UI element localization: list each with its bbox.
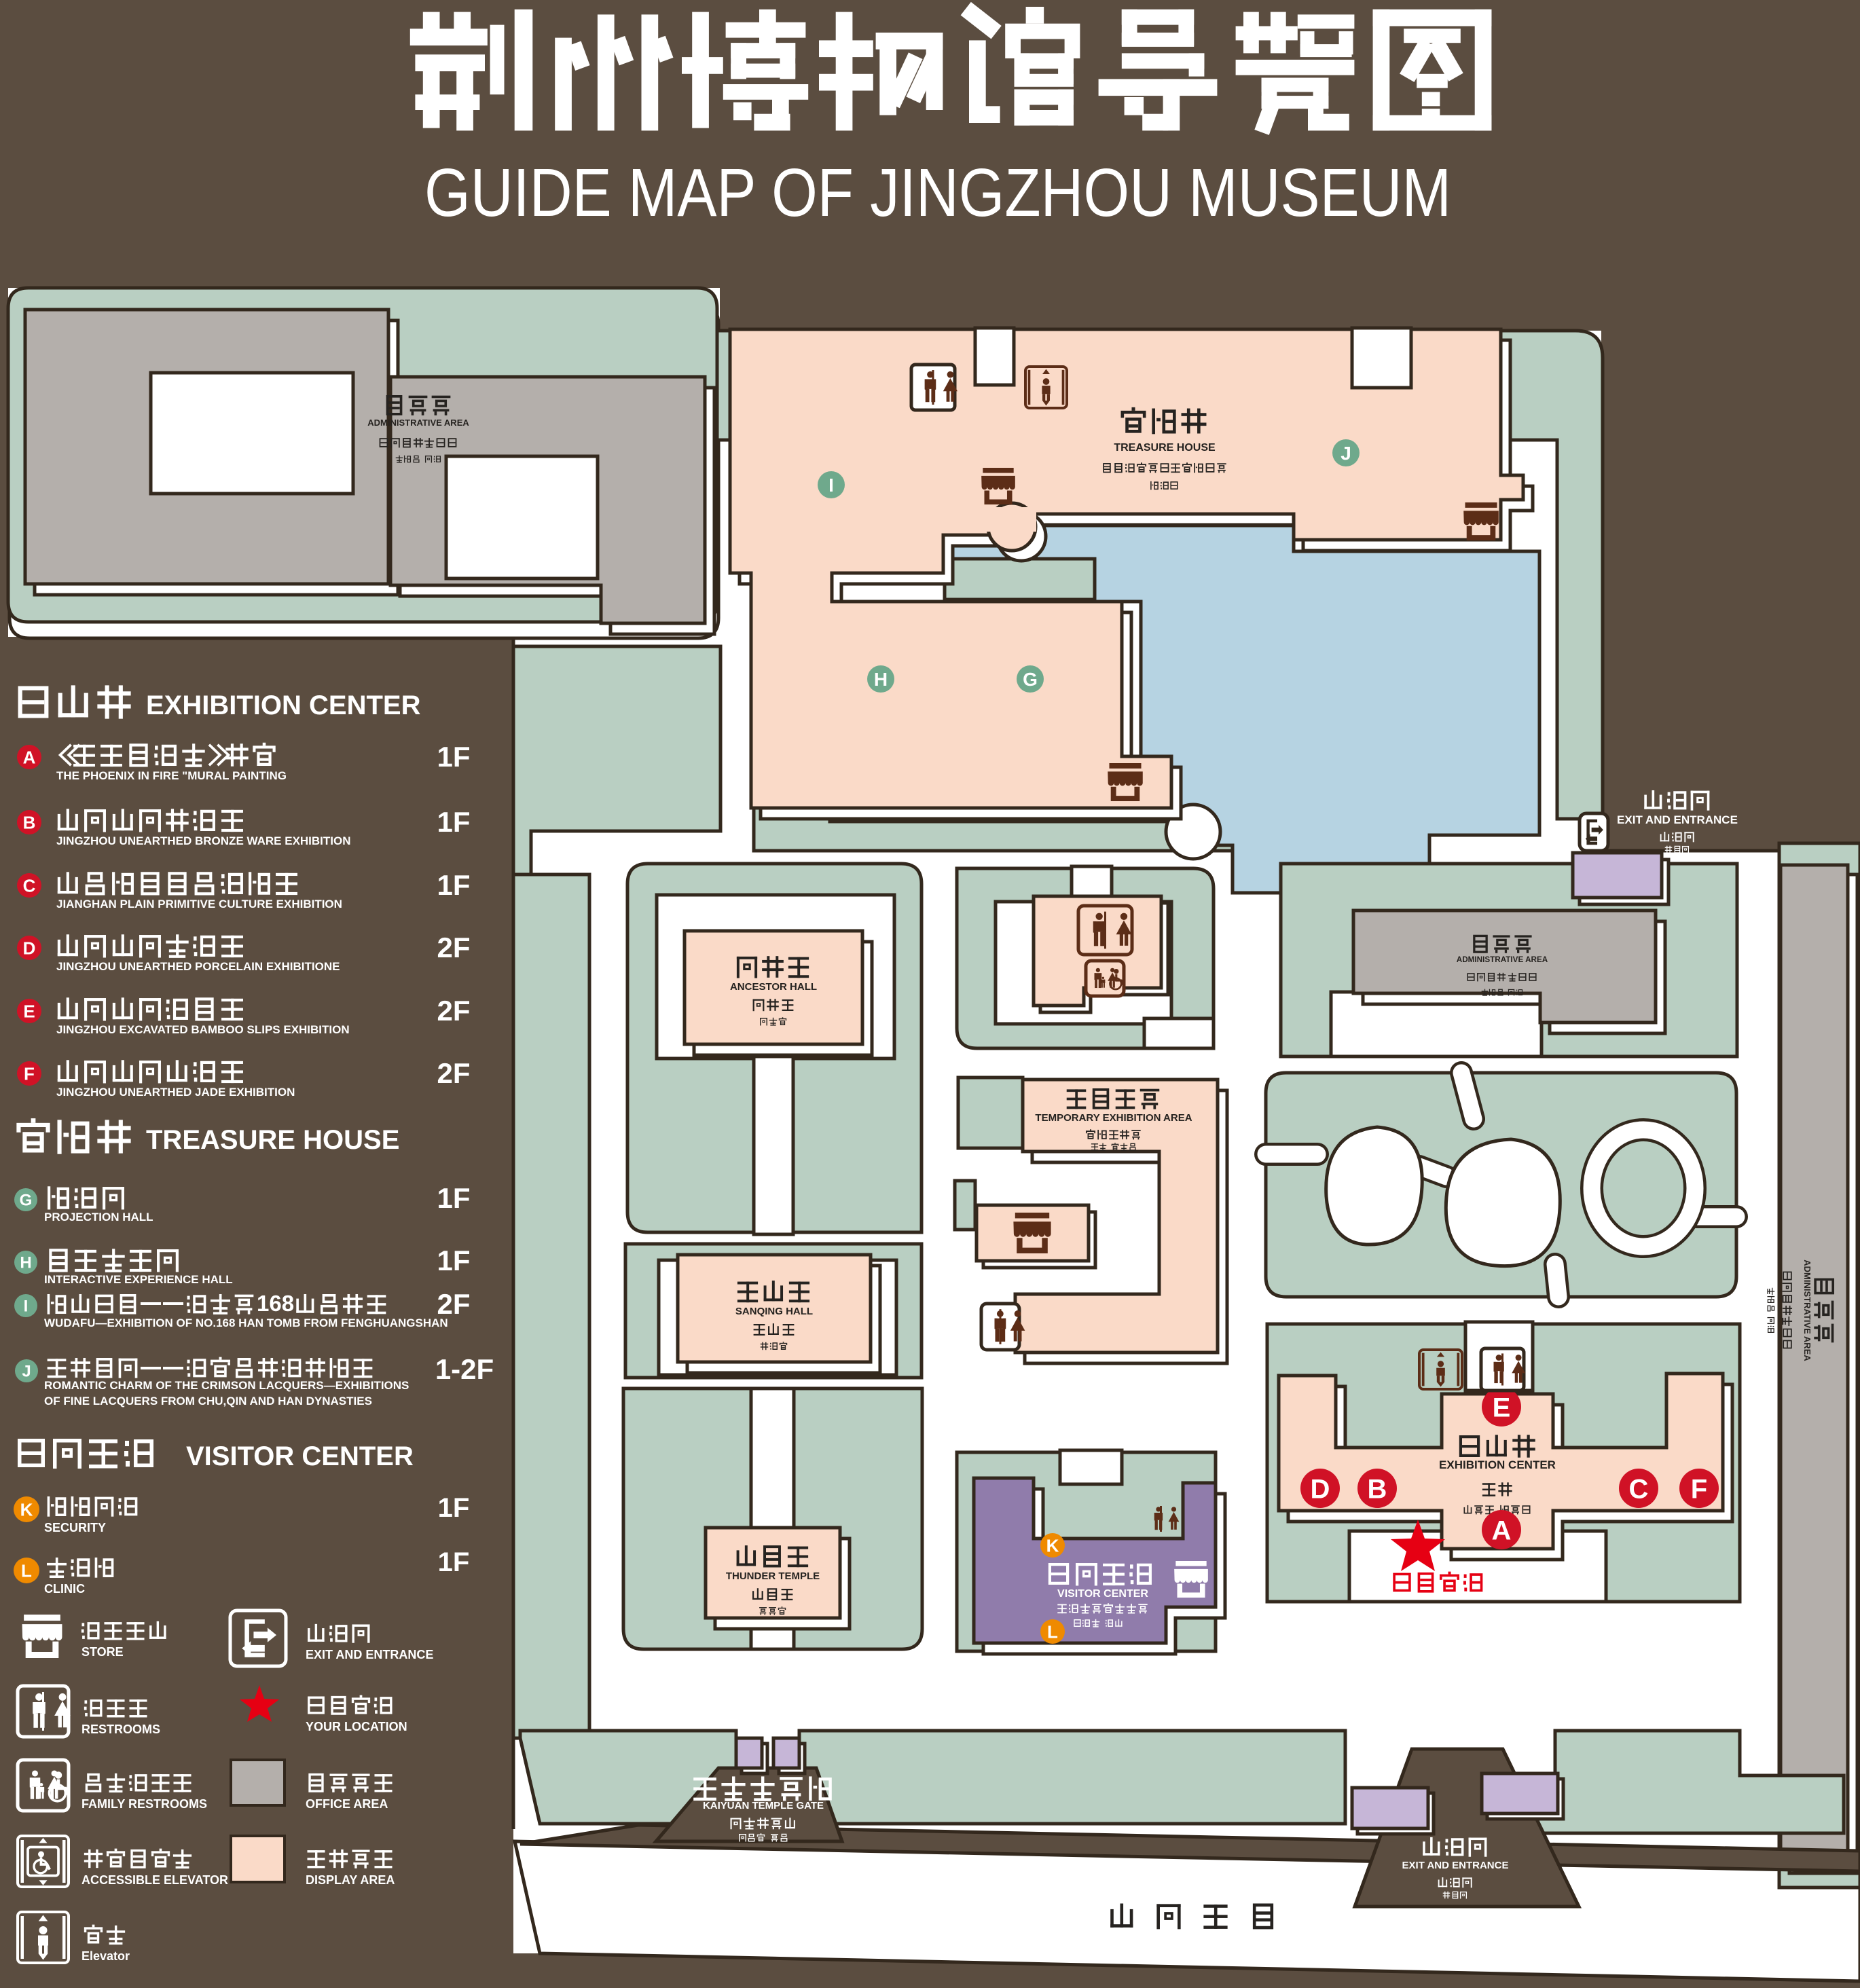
svg-text:SECURITY: SECURITY: [44, 1521, 106, 1534]
svg-text:J: J: [22, 1363, 31, 1381]
svg-text:EXHIBITION CENTER: EXHIBITION CENTER: [1439, 1458, 1556, 1471]
svg-text:STORE: STORE: [81, 1645, 124, 1659]
svg-text:ANCESTOR HALL: ANCESTOR HALL: [730, 981, 817, 993]
svg-text:Elevator: Elevator: [81, 1949, 130, 1963]
svg-text:J: J: [1341, 443, 1351, 464]
svg-text:JINGZHOU UNEARTHED JADE EXHIBI: JINGZHOU UNEARTHED JADE EXHIBITION: [56, 1086, 295, 1099]
svg-text:D: D: [23, 938, 36, 958]
svg-text:I: I: [24, 1297, 29, 1316]
svg-text:JINGZHOU UNEARTHED BRONZE WARE: JINGZHOU UNEARTHED BRONZE WARE EXHIBITIO…: [56, 834, 351, 847]
svg-text:B: B: [1368, 1474, 1387, 1504]
svg-text:G: G: [1023, 669, 1038, 690]
svg-text:D: D: [1311, 1474, 1330, 1504]
svg-text:L: L: [21, 1560, 32, 1581]
svg-text:1F: 1F: [437, 1245, 470, 1276]
svg-text:E: E: [1493, 1393, 1511, 1422]
svg-text:YOUR LOCATION: YOUR LOCATION: [306, 1720, 407, 1733]
svg-text:OF FINE LACQUERS FROM CHU,QIN: OF FINE LACQUERS FROM CHU,QIN AND HAN DY…: [44, 1395, 372, 1407]
svg-text:DISPLAY AREA: DISPLAY AREA: [306, 1873, 395, 1887]
svg-text:1F: 1F: [437, 1182, 470, 1214]
svg-text:1F: 1F: [438, 1493, 470, 1523]
svg-text:RESTROOMS: RESTROOMS: [81, 1723, 160, 1736]
svg-text:ACCESSIBLE ELEVATOR: ACCESSIBLE ELEVATOR: [81, 1873, 228, 1887]
svg-text:TEMPORARY EXHIBITION AREA: TEMPORARY EXHIBITION AREA: [1035, 1112, 1192, 1124]
svg-text:F: F: [24, 1063, 35, 1084]
svg-text:2F: 2F: [437, 932, 470, 963]
svg-text:ADMINISTRATIVE AREA: ADMINISTRATIVE AREA: [367, 418, 469, 428]
svg-text:ADMINISTRATIVE AREA: ADMINISTRATIVE AREA: [1457, 955, 1548, 964]
svg-text:E: E: [23, 1001, 35, 1021]
svg-text:G: G: [20, 1192, 33, 1210]
svg-text:JINGZHOU UNEARTHED PORCELAIN E: JINGZHOU UNEARTHED PORCELAIN EXHIBITIONE: [56, 960, 340, 973]
svg-text:EXHIBITION CENTER: EXHIBITION CENTER: [146, 691, 421, 720]
svg-text:EXIT AND ENTRANCE: EXIT AND ENTRANCE: [1617, 813, 1738, 826]
svg-text:ROMANTIC CHARM OF THE CRIMSON: ROMANTIC CHARM OF THE CRIMSON LACQUERS—E…: [44, 1379, 409, 1392]
svg-text:2F: 2F: [437, 1057, 470, 1089]
svg-text:I: I: [828, 475, 834, 496]
svg-text:VISITOR CENTER: VISITOR CENTER: [186, 1441, 414, 1471]
svg-text:OFFICE AREA: OFFICE AREA: [306, 1797, 388, 1811]
svg-text:FAMILY RESTROOMS: FAMILY RESTROOMS: [81, 1797, 207, 1811]
svg-text:INTERACTIVE EXPERIENCE HALL: INTERACTIVE EXPERIENCE HALL: [44, 1273, 233, 1286]
svg-text:EXIT AND ENTRANCE: EXIT AND ENTRANCE: [306, 1648, 433, 1661]
svg-text:THE PHOENIX IN FIRE "MURAL PAI: THE PHOENIX IN FIRE "MURAL PAINTING: [56, 769, 287, 782]
svg-text:A: A: [1492, 1515, 1512, 1545]
svg-text:F: F: [1691, 1474, 1707, 1504]
svg-text:PROJECTION HALL: PROJECTION HALL: [44, 1211, 153, 1223]
svg-text:L: L: [1047, 1621, 1058, 1642]
svg-text:WUDAFU—EXHIBITION OF NO.168 HA: WUDAFU—EXHIBITION OF NO.168 HAN TOMB FRO…: [44, 1317, 448, 1329]
svg-text:JIANGHAN PLAIN PRIMITIVE CULTU: JIANGHAN PLAIN PRIMITIVE CULTURE EXHIBIT…: [56, 898, 342, 910]
svg-text:TREASURE HOUSE: TREASURE HOUSE: [146, 1125, 399, 1155]
svg-text:K: K: [20, 1499, 33, 1520]
svg-text:1F: 1F: [437, 806, 470, 838]
svg-text:1F: 1F: [438, 1547, 470, 1577]
svg-text:EXIT AND ENTRANCE: EXIT AND ENTRANCE: [1402, 1860, 1509, 1871]
svg-text:C: C: [1629, 1474, 1649, 1504]
svg-text:VISITOR CENTER: VISITOR CENTER: [1057, 1588, 1148, 1600]
svg-text:SANQING HALL: SANQING HALL: [735, 1306, 813, 1317]
svg-text:1F: 1F: [437, 869, 470, 901]
svg-text:2F: 2F: [437, 995, 470, 1027]
svg-text:B: B: [23, 812, 36, 832]
svg-text:1F: 1F: [437, 741, 470, 773]
svg-text:KAIYUAN TEMPLE GATE: KAIYUAN TEMPLE GATE: [703, 1800, 824, 1811]
svg-text:C: C: [23, 875, 36, 896]
svg-text:JINGZHOU EXCAVATED BAMBOO SLIP: JINGZHOU EXCAVATED BAMBOO SLIPS EXHIBITI…: [56, 1023, 350, 1036]
svg-text:2F: 2F: [437, 1288, 470, 1320]
svg-text:1-2F: 1-2F: [435, 1353, 494, 1385]
svg-text:H: H: [20, 1254, 31, 1272]
svg-text:ADMINISTRATIVE AREA: ADMINISTRATIVE AREA: [1802, 1259, 1812, 1361]
svg-text:A: A: [23, 747, 36, 767]
svg-text:H: H: [874, 669, 888, 690]
svg-text:168: 168: [257, 1291, 294, 1316]
svg-text:TREASURE HOUSE: TREASURE HOUSE: [1114, 442, 1216, 454]
svg-text:CLINIC: CLINIC: [44, 1582, 85, 1596]
svg-text:K: K: [1046, 1535, 1059, 1556]
svg-text:GUIDE MAP OF JINGZHOU MUSEUM: GUIDE MAP OF JINGZHOU MUSEUM: [424, 155, 1451, 231]
svg-text:THUNDER TEMPLE: THUNDER TEMPLE: [726, 1570, 820, 1582]
